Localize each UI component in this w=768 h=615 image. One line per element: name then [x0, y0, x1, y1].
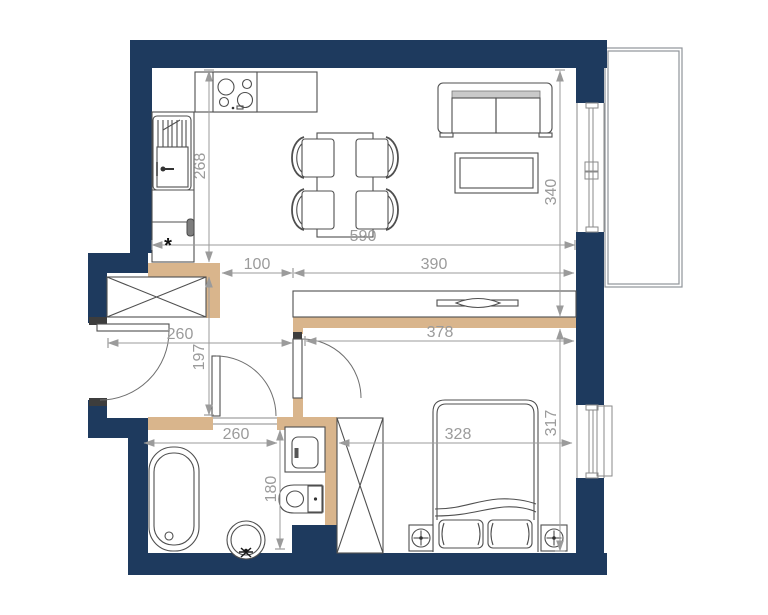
hallway-wardrobe	[107, 277, 206, 317]
toilet	[279, 485, 323, 513]
dim-bedroom-height: 317	[543, 410, 560, 437]
living-room-window	[577, 103, 604, 232]
floor-plan: 268 590 * 340 100 390 260 197 378 317 32…	[0, 0, 768, 615]
dim-kitchen-passage: 100	[244, 256, 271, 273]
bathroom-door	[212, 356, 277, 424]
floor-plan-canvas: 268 590 * 340 100 390 260 197 378 317 32…	[0, 0, 768, 615]
dim-kitchen-height: 268	[192, 153, 209, 180]
balcony-outline	[605, 48, 682, 287]
dim-hallway-height: 197	[191, 344, 208, 371]
tv-console	[293, 291, 576, 317]
bedroom-window	[577, 405, 612, 478]
sofa	[438, 83, 552, 137]
nightstand-right	[541, 525, 567, 551]
bathroom-sink	[227, 521, 265, 559]
dim-living-width: 390	[421, 256, 448, 273]
dim-hallway-width: 260	[167, 326, 194, 343]
bathtub	[149, 447, 199, 551]
stove	[213, 72, 257, 112]
coffee-table	[455, 153, 538, 193]
dim-bathroom-width: 260	[223, 426, 250, 443]
washing-machine	[285, 427, 325, 472]
entrance-door	[89, 317, 169, 406]
nightstand-left	[409, 525, 433, 551]
dim-living-height: 340	[543, 179, 560, 206]
dim-bed-zone-width: 328	[445, 426, 472, 443]
dim-top-span: 590	[350, 228, 377, 245]
bedroom-door	[293, 332, 361, 398]
dim-bedroom-top-width: 378	[427, 324, 454, 341]
bed	[433, 400, 538, 552]
kitchen-sink	[153, 116, 191, 190]
entrance-marker: *	[164, 235, 172, 257]
bedroom-wardrobe	[337, 418, 383, 553]
dim-bathroom-height: 180	[263, 476, 280, 503]
